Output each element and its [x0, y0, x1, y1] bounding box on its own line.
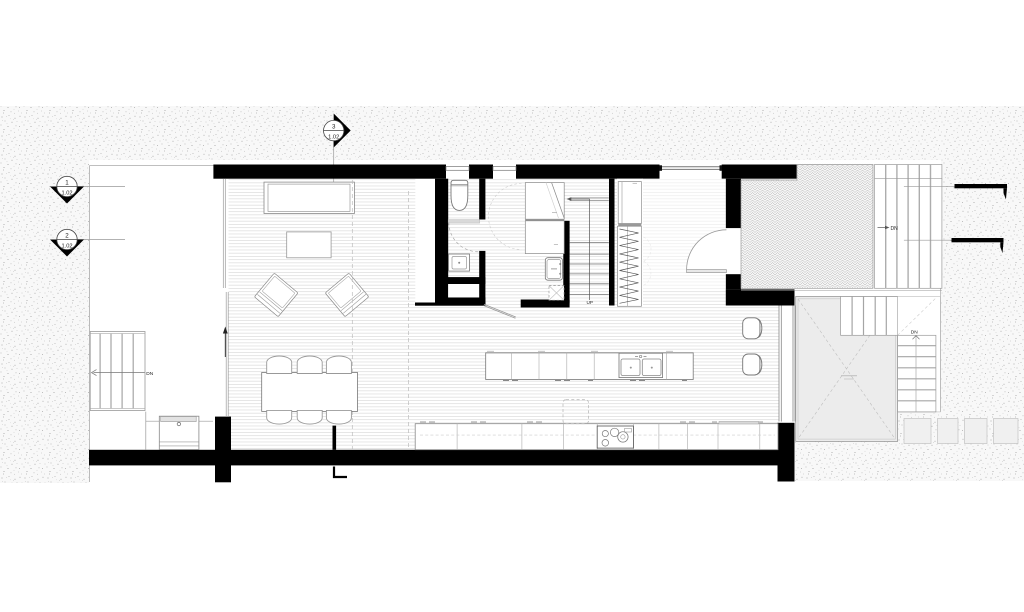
svg-text:UP: UP	[587, 300, 593, 305]
svg-text:DN: DN	[146, 371, 153, 377]
svg-text:2: 2	[65, 233, 69, 240]
svg-text:DN: DN	[891, 226, 899, 232]
svg-text:3: 3	[332, 124, 336, 131]
svg-text:DN: DN	[911, 329, 918, 335]
svg-text:1: 1	[65, 180, 69, 187]
svg-text:1.02: 1.02	[328, 135, 339, 141]
svg-text:1.02: 1.02	[61, 190, 72, 196]
svg-text:1.02: 1.02	[61, 243, 72, 249]
